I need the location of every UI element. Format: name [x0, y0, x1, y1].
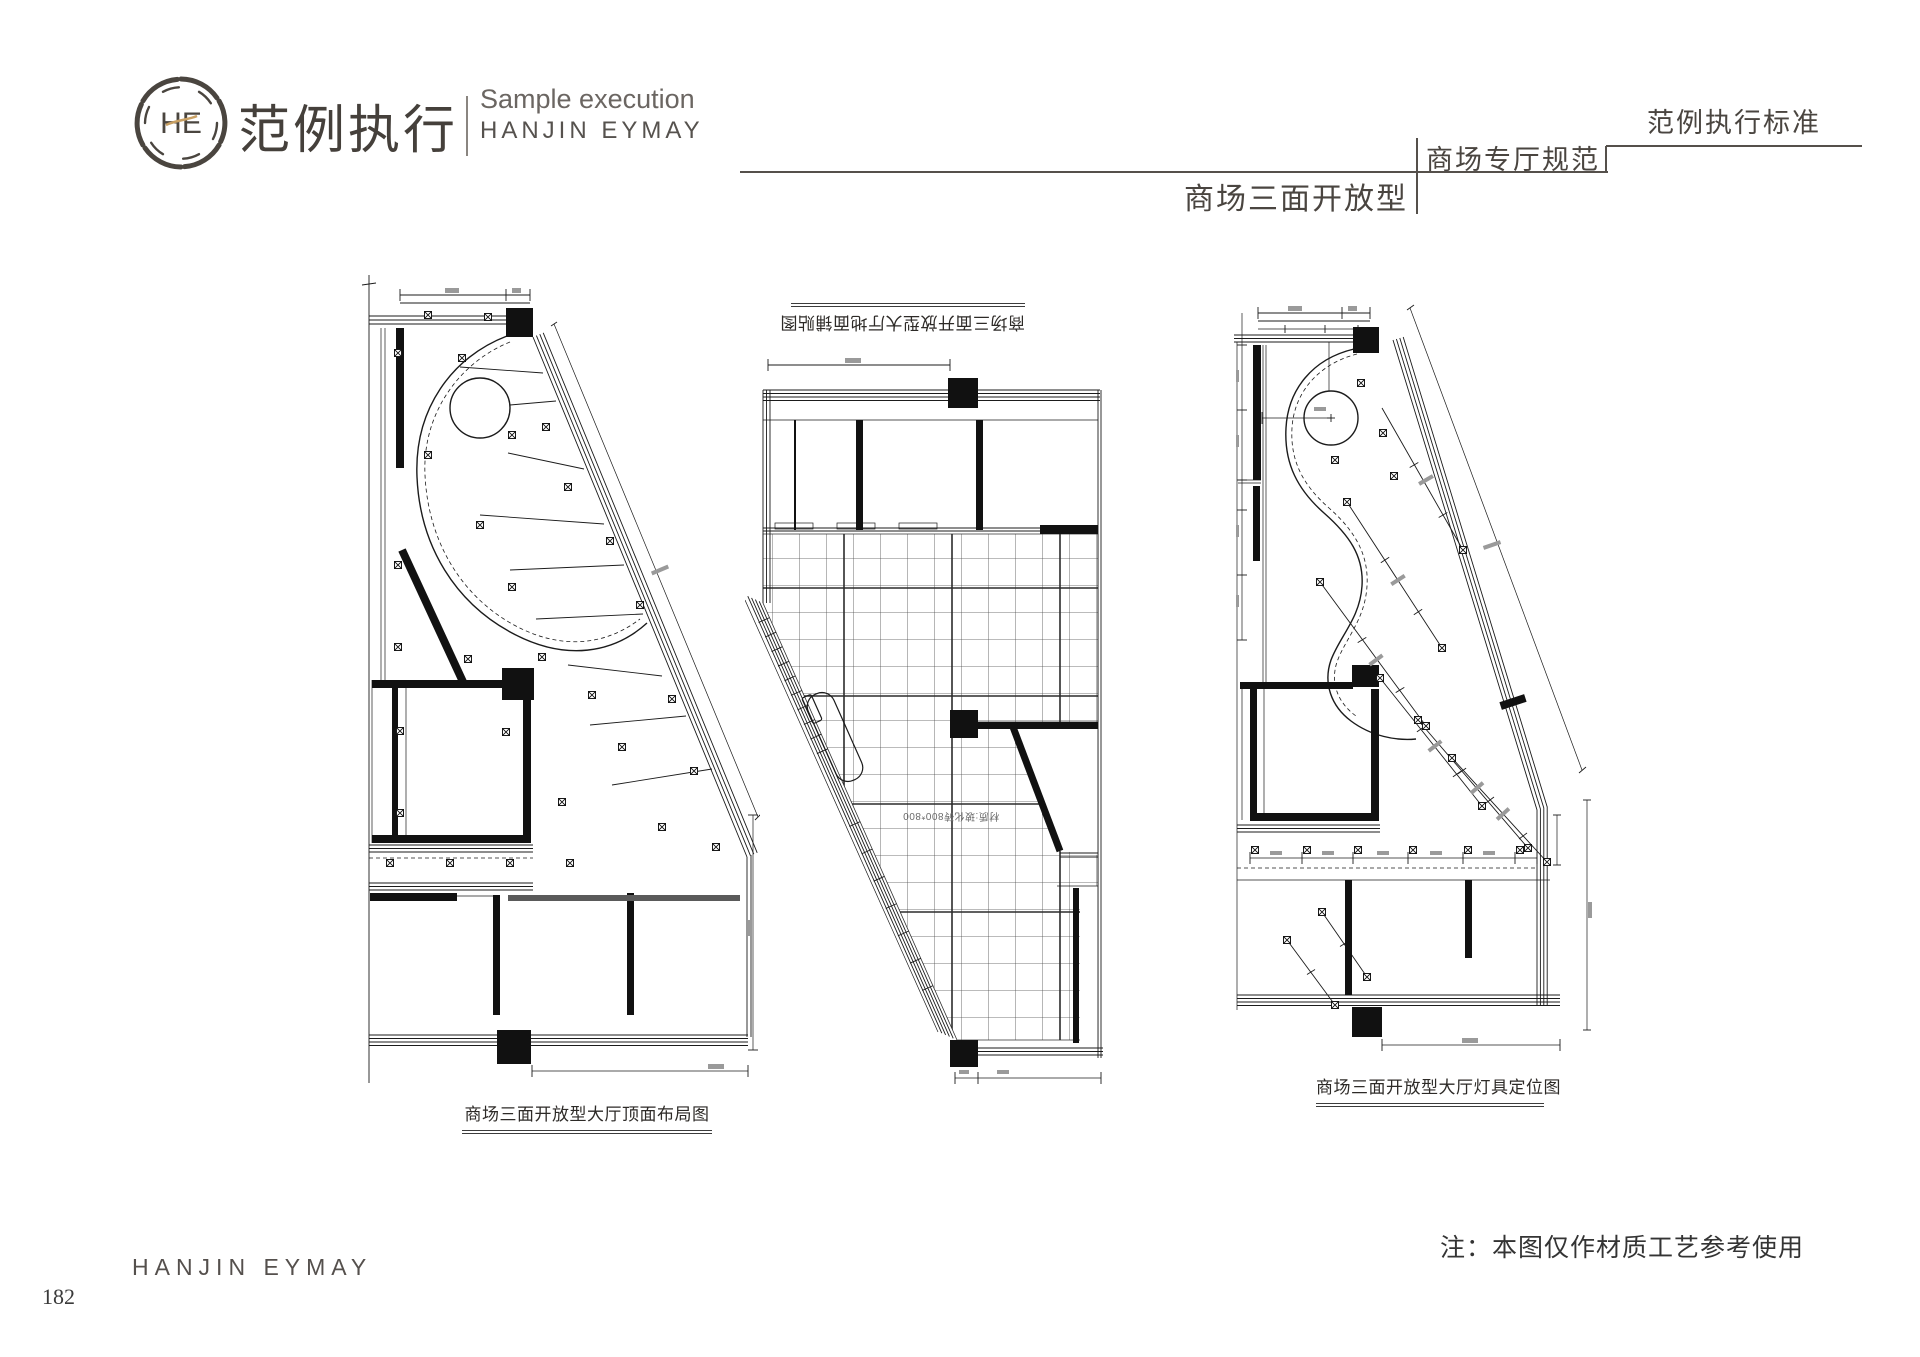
standard-label: 范例执行标准: [1606, 101, 1862, 140]
lighting-symbols: [1251, 379, 1550, 1008]
standard-underline: [1606, 145, 1862, 147]
floor-material-note: 材质:玻化砖800*800: [888, 810, 1014, 825]
brand-logo-icon: HE: [128, 70, 234, 176]
brand-name-cn: 范例执行: [238, 88, 458, 163]
ceiling-plan-caption: 商场三面开放型大厅顶面布局图: [462, 1100, 712, 1134]
page-title: 商场三面开放型: [1100, 174, 1408, 218]
floor-plan-drawing: [745, 288, 1115, 1100]
brand-tagline: Sample execution: [480, 84, 695, 115]
page-number: 182: [42, 1284, 75, 1310]
lighting-plan-caption: 商场三面开放型大厅灯具定位图: [1316, 1073, 1544, 1107]
floor-plan-caption-rotated: 商场三面开放型大厅地面铺贴图: [791, 303, 1025, 337]
section-label: 商场专厅规范: [1420, 138, 1606, 177]
footer-brand: HANJIN EYMAY: [132, 1254, 372, 1281]
title-divider-line: [1416, 138, 1418, 214]
ceiling-plan-drawing: [360, 225, 760, 1145]
logo-divider: [466, 96, 468, 156]
lighting-plan-drawing: [1230, 250, 1650, 1130]
reference-note: 注：本图仅作材质工艺参考使用: [1440, 1228, 1804, 1264]
brand-name-en: HANJIN EYMAY: [480, 117, 704, 145]
manual-page: HE 范例执行 Sample execution HANJIN EYMAY 范例…: [0, 0, 1920, 1357]
